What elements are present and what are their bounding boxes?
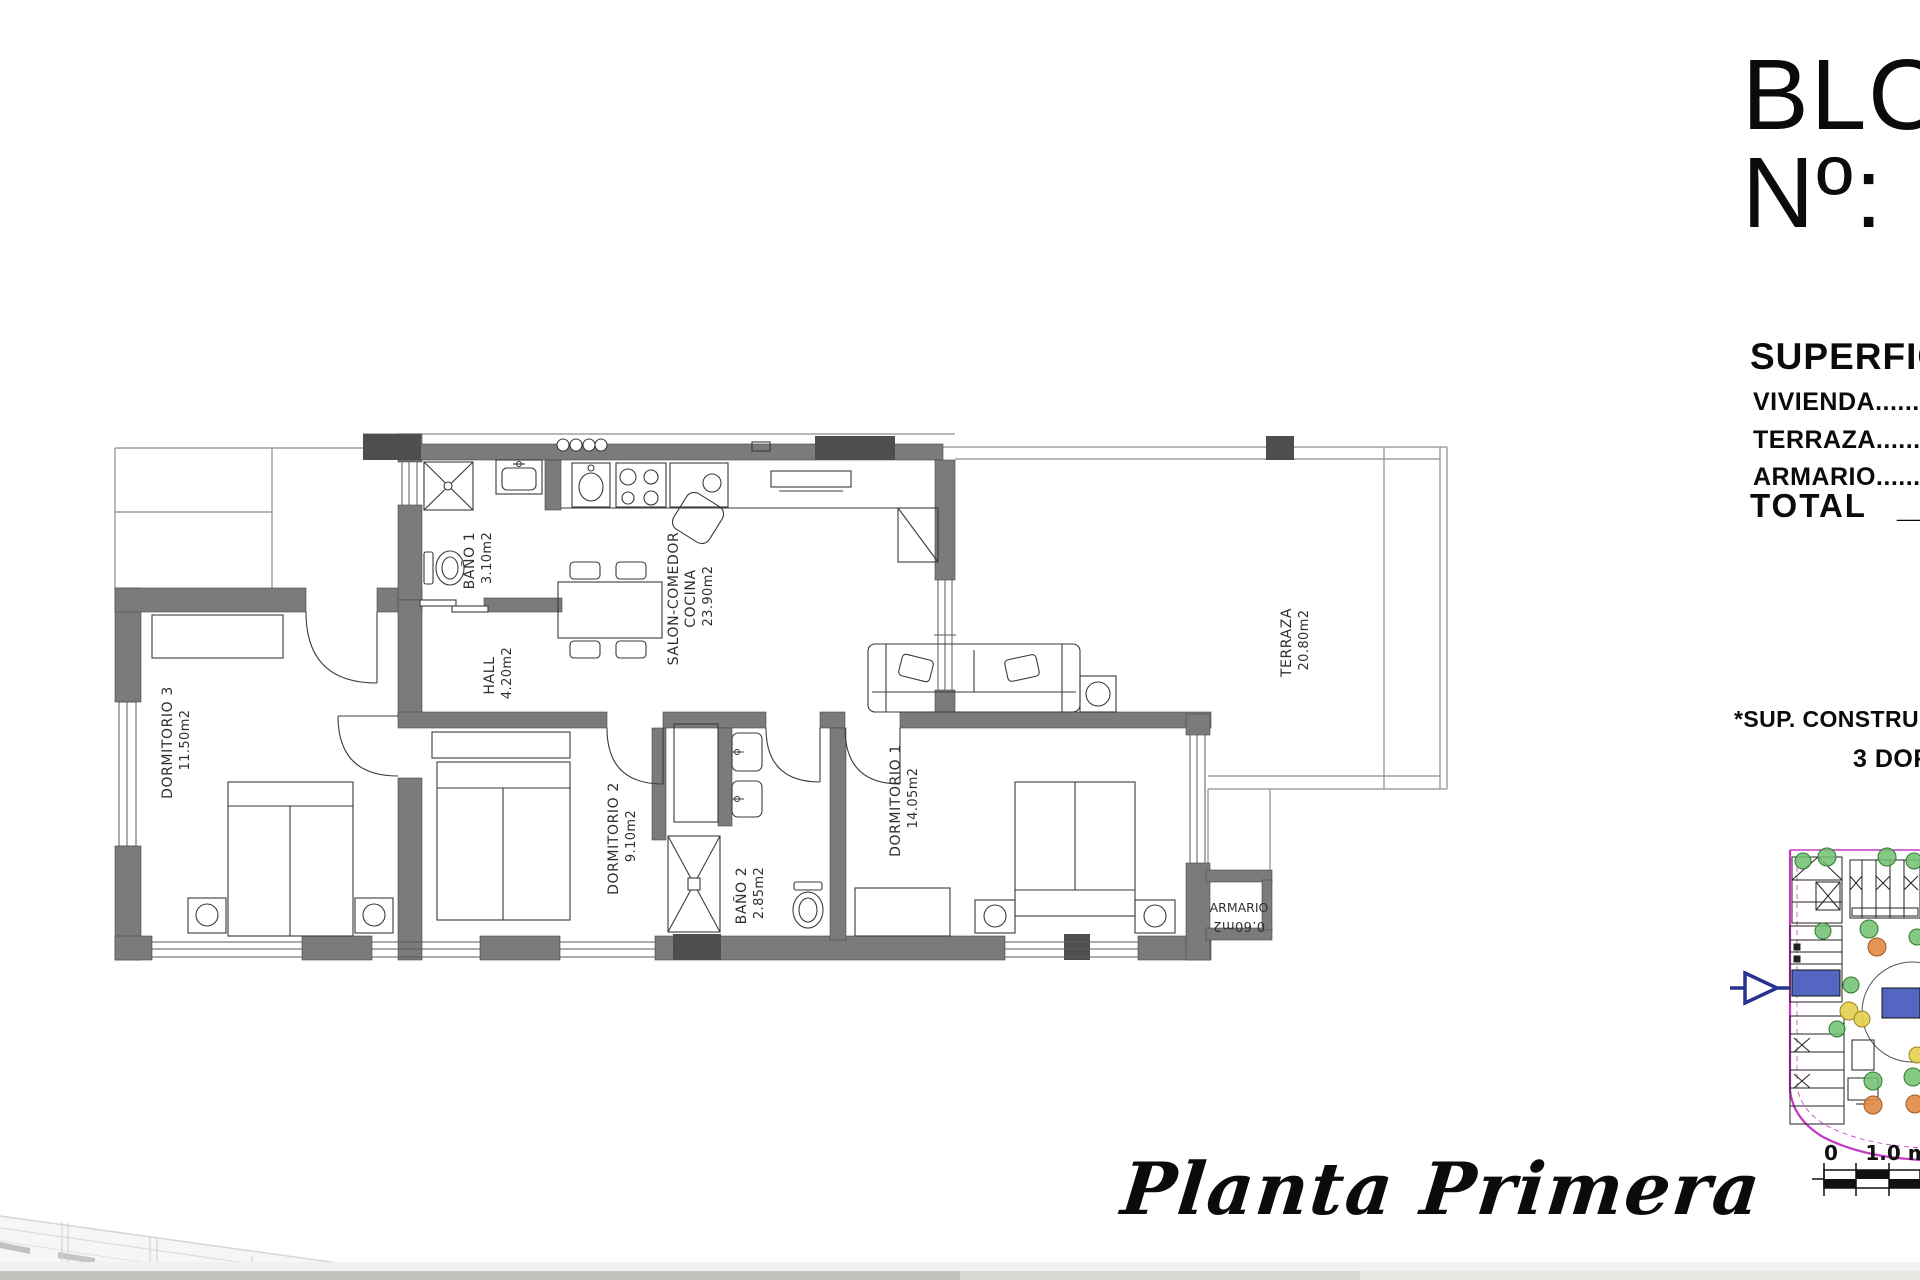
hob — [616, 463, 666, 507]
scale-one-label: 1.0 m — [1865, 1141, 1920, 1165]
room-label-bano-2: BAÑO 2 2.85m2 — [733, 862, 767, 925]
room-label-armario: ARMARIO — [1210, 900, 1269, 915]
superficie-heading: SUPERFICIE — [1750, 336, 1920, 378]
furniture — [152, 439, 1175, 936]
dresser-1 — [855, 888, 950, 936]
surface-row-terraza: TERRAZA.............. — [1753, 426, 1920, 455]
entry-door-arc — [306, 612, 377, 683]
total-label: TOTAL — [1750, 487, 1867, 524]
room-label-dormitorio-3: DORMITORIO 3 11.50m2 — [160, 681, 193, 799]
sofa — [868, 644, 1080, 712]
tv-unit — [771, 471, 851, 491]
room-label-dormitorio-1: DORMITORIO 1 14.05m2 — [888, 739, 921, 857]
block-number-label: Nº: — [1742, 144, 1920, 242]
doors — [306, 600, 900, 784]
dining-table — [558, 562, 662, 658]
floor-plan-svg: DORMITORIO 3 11.50m2 BAÑO 1 3.10m2 HALL … — [0, 0, 1920, 1280]
room-label-dormitorio-2: DORMITORIO 2 9.10m2 — [606, 777, 639, 895]
plan-script-title: Planta Primera — [1118, 1146, 1766, 1231]
surface-row-vivienda: VIVIENDA.............. — [1753, 388, 1920, 417]
note-bedrooms: 3 DORMITORIOS — [1853, 745, 1920, 774]
wardrobe-3 — [152, 615, 283, 658]
block-title: BLOQUE Nº: — [1742, 46, 1920, 242]
site-map — [1730, 848, 1920, 1160]
floorplan-page: { "header": { "block_title": "BLOQUE", "… — [0, 0, 1920, 1280]
room-area-armario: 0.60m2 — [1213, 918, 1265, 933]
bano1-sliding-door — [420, 600, 488, 612]
wardrobe-2 — [432, 732, 570, 758]
location-arrow-icon — [1730, 973, 1790, 1003]
room-label-bano-1: BAÑO 1 3.10m2 — [461, 527, 495, 590]
dorm3-furniture — [152, 615, 393, 936]
block-title-line: BLOQUE — [1742, 46, 1920, 144]
shower-1 — [424, 462, 473, 510]
toilet-1 — [424, 551, 464, 585]
total-placeholder: __ — [1897, 487, 1920, 524]
double-sink — [732, 733, 762, 817]
surface-total-row: TOTAL__ — [1750, 487, 1920, 525]
bottom-bands — [0, 1262, 1920, 1280]
windows — [119, 462, 1205, 957]
room-label-hall: HALL 4.20m2 — [482, 647, 515, 699]
toilet-2 — [793, 882, 823, 928]
scale-bar: 0 1.0 m — [1812, 1141, 1920, 1196]
closet-column — [674, 724, 718, 822]
dormitorio3-door-arc — [338, 716, 398, 776]
oven — [670, 463, 728, 507]
shower-2 — [668, 836, 720, 932]
sofa-side-table — [1080, 676, 1116, 712]
bano2-door-arc — [766, 728, 820, 782]
room-labels: DORMITORIO 3 11.50m2 BAÑO 1 3.10m2 HALL … — [160, 527, 1312, 933]
room-label-salon: SALON-COMEDOR COCINA 23.90m2 — [666, 527, 716, 666]
room-label-terraza: TERRAZA 20.80m2 — [1279, 603, 1312, 678]
scale-zero-label: 0 — [1824, 1141, 1838, 1165]
dorm2-furniture — [432, 732, 570, 920]
sink-1 — [496, 460, 542, 494]
note-sup-construida: *SUP. CONSTRUIDA — [1734, 706, 1920, 733]
